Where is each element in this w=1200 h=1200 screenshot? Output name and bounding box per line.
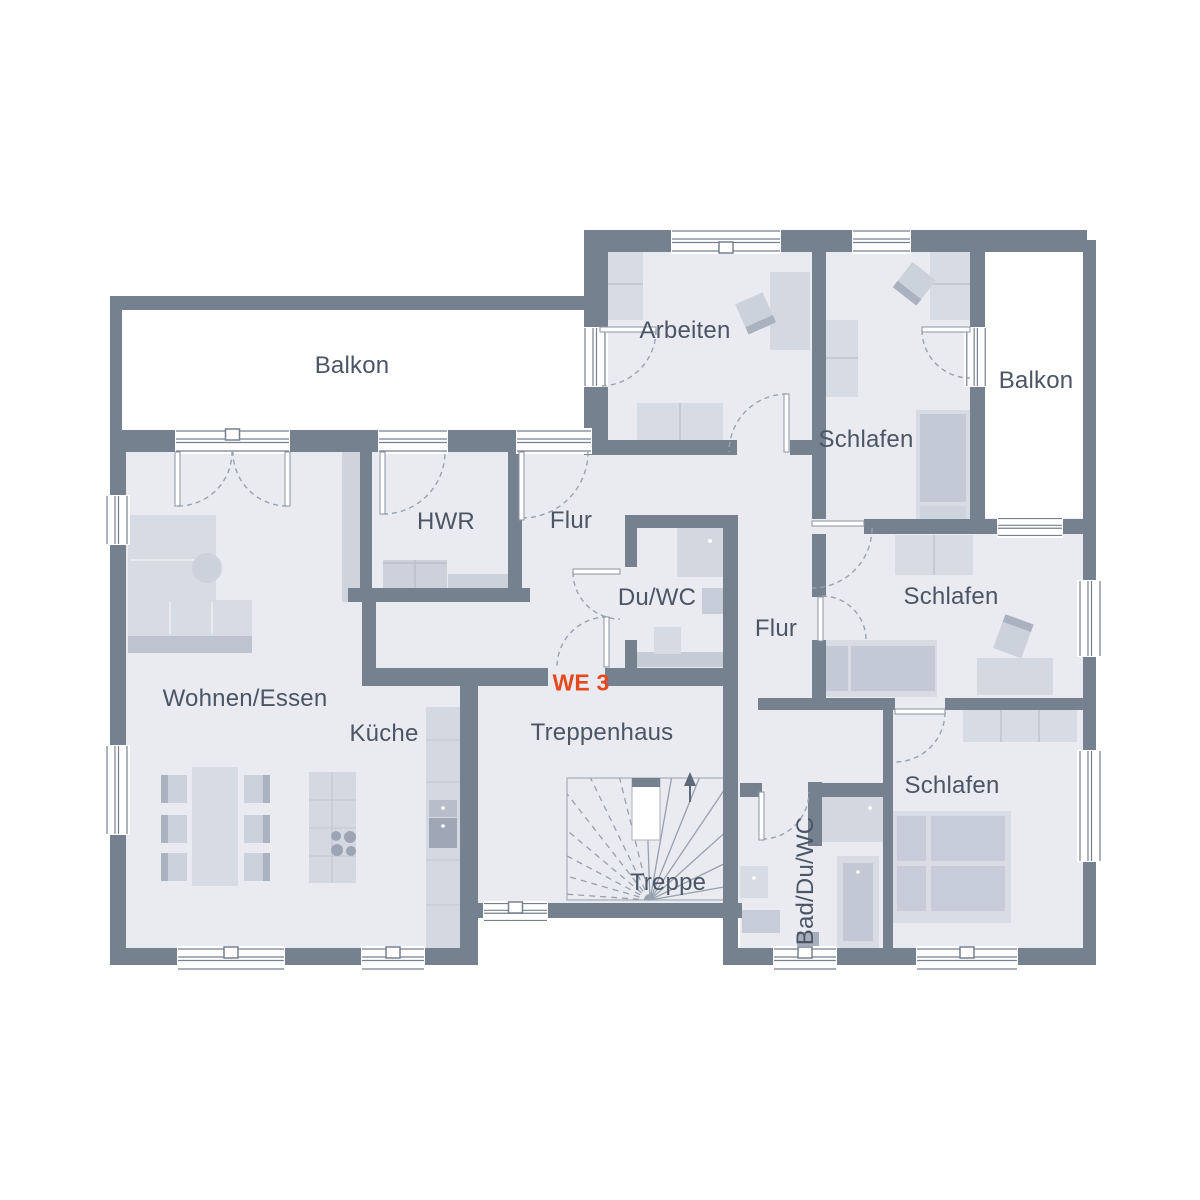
window (1077, 580, 1103, 657)
basin-dot (752, 876, 756, 880)
room-label-balkon-right: Balkon (999, 369, 1074, 393)
window (175, 428, 290, 454)
fridge-dot (441, 824, 445, 828)
window (104, 495, 130, 545)
bathtub-inner (843, 863, 873, 941)
wall-segment (460, 682, 478, 965)
desk (977, 658, 1053, 695)
window-handle (226, 429, 240, 440)
floor-plan-drawing (0, 0, 1200, 1200)
door-leaf (573, 569, 620, 574)
wall-segment (110, 296, 608, 310)
bad-toilet (742, 910, 780, 933)
room-label-schlafen-top: Schlafen (819, 428, 914, 452)
shower-drain (708, 539, 712, 543)
dining-table (192, 767, 238, 886)
window (483, 901, 548, 923)
door-leaf (519, 452, 524, 520)
window (516, 428, 592, 454)
wall-segment (758, 698, 895, 710)
window (361, 946, 425, 972)
window-handle (386, 947, 400, 958)
vanity-counter (637, 652, 723, 667)
door-leaf (895, 709, 945, 714)
door-leaf (784, 394, 789, 452)
window (177, 946, 285, 972)
window (671, 228, 781, 254)
tall-cabinet (342, 452, 360, 602)
bad-shower (822, 797, 883, 842)
refrigerator (429, 818, 457, 848)
dining-chairs-right (244, 775, 270, 881)
wall-segment (362, 668, 548, 686)
wall-segment (587, 230, 1087, 252)
oven-knob (441, 806, 445, 810)
window-handle (798, 947, 812, 958)
door-leaf (818, 597, 823, 641)
wall-segment (625, 515, 738, 528)
wall-segment (883, 698, 893, 948)
bed-mattress (920, 414, 966, 502)
stair-void-cap (632, 778, 660, 787)
door-leaf (759, 792, 764, 840)
room-label-arbeiten: Arbeiten (640, 319, 731, 343)
corner-sofa-base (128, 636, 252, 653)
room-label-wohnen-essen: Wohnen/Essen (163, 687, 328, 711)
wall-segment (945, 698, 1085, 710)
dining-chairs-left (161, 775, 187, 881)
room-label-duwc: Du/WC (618, 586, 696, 610)
tub-drain (856, 870, 860, 874)
arbeiten-desk (770, 272, 810, 350)
mattress (931, 816, 1005, 861)
room-label-kueche: Küche (349, 722, 418, 746)
room-label-treppe: Treppe (630, 871, 706, 895)
door-leaf (922, 327, 970, 332)
pillow (897, 816, 926, 861)
window (773, 946, 837, 972)
washbasin (654, 627, 681, 654)
room-label-hwr: HWR (417, 510, 475, 534)
window-handle (224, 947, 238, 958)
room-label-treppenhaus: Treppenhaus (531, 721, 674, 745)
wall-segment (605, 668, 738, 686)
pillow (897, 866, 926, 911)
wall-segment (812, 640, 826, 700)
door-leaf (380, 452, 385, 514)
corner-sofa-horizontal (128, 600, 252, 640)
door-leaf (812, 521, 864, 526)
wall-segment (625, 640, 637, 682)
window (104, 745, 130, 835)
wall-segment (723, 515, 738, 965)
bad-washbasin (740, 866, 768, 898)
room-label-balkon-left: Balkon (315, 354, 390, 378)
room-label-flur-right: Flur (755, 617, 797, 641)
window (916, 946, 1018, 972)
wall-segment (810, 783, 893, 797)
mattress (931, 866, 1005, 911)
floor-plan-canvas: Balkon Arbeiten Schlafen Balkon HWR Flur… (0, 0, 1200, 1200)
room-label-schlafen-bottom: Schlafen (905, 774, 1000, 798)
window (378, 428, 448, 454)
room-label-bad-du-wc: Bad/Du/WC (794, 817, 818, 946)
shower-drain (868, 806, 872, 810)
wall-segment (362, 588, 376, 686)
wall-segment (110, 296, 122, 436)
room-label-flur-upper: Flur (550, 509, 592, 533)
wall-segment (360, 452, 372, 588)
window-handle (509, 902, 523, 913)
unit-marker-we3: WE 3 (552, 672, 609, 695)
wc-toilet (702, 588, 723, 614)
window-handle (960, 947, 974, 958)
window-handle (719, 242, 733, 253)
room-label-schlafen-mid: Schlafen (904, 585, 999, 609)
door-leaf (285, 452, 290, 506)
window (997, 516, 1063, 538)
hwr-counter (448, 574, 508, 588)
stair-void (632, 778, 660, 840)
window (1077, 750, 1103, 862)
shower (677, 528, 723, 577)
door-leaf (604, 617, 609, 667)
wall-segment (625, 515, 637, 567)
window (582, 327, 608, 387)
single-bed-mattress (851, 646, 935, 691)
door-leaf (175, 452, 180, 506)
window (852, 228, 911, 254)
coffee-table (192, 553, 222, 583)
wardrobe (963, 706, 1077, 742)
wall-segment (812, 252, 826, 519)
floor-main-left-south (118, 910, 460, 952)
